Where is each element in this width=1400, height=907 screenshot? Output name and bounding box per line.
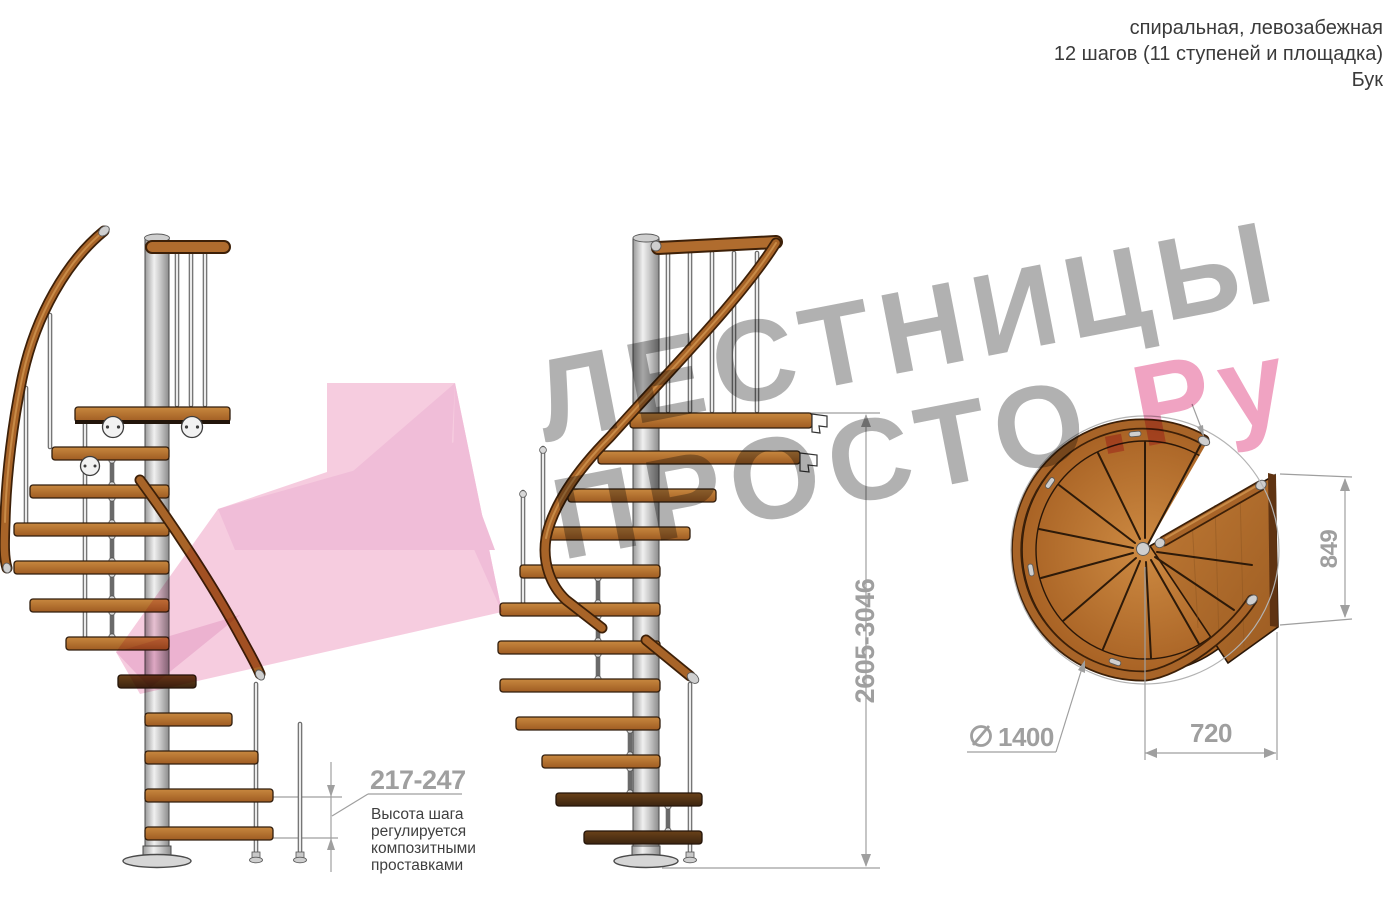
arrow-down-icon — [861, 854, 871, 867]
base-flange — [123, 855, 191, 868]
arrow-up-icon — [327, 838, 335, 850]
watermark-arrow — [116, 383, 502, 694]
platform-side-dimension: 849 — [1316, 530, 1343, 569]
dimension-diameter: 1400 — [967, 660, 1085, 752]
diameter-dimension: 1400 — [998, 722, 1054, 752]
title-material: Бук — [1352, 69, 1384, 91]
dimension-platform-side: 849 — [1280, 474, 1352, 625]
connector-plate — [81, 417, 203, 476]
staircase-technical-drawing: 2605-3046 217-247 Высота шага регулирует… — [0, 0, 1400, 907]
center-post-ball — [1137, 543, 1150, 556]
title-steps: 12 шагов (11 ступеней и площадка) — [1054, 43, 1383, 65]
drawing-page: 2605-3046 217-247 Высота шага регулирует… — [0, 0, 1400, 907]
exit-width-dimension: 720 — [1190, 718, 1232, 748]
title-type: спиральная, левозабежная — [1130, 17, 1383, 39]
arrow-down-icon — [327, 785, 335, 797]
platform-board — [75, 407, 230, 422]
baluster-feet — [684, 852, 697, 863]
center-column — [145, 237, 169, 859]
total-height-dimension: 2605-3046 — [850, 578, 880, 703]
title-block: спиральная, левозабежная 12 шагов (11 ст… — [1054, 17, 1383, 91]
base-flange — [614, 855, 678, 868]
step-height-note: Высота шага регулируется композитными пр… — [371, 806, 480, 874]
step-height-dimension: 217-247 — [370, 765, 466, 795]
baluster-feet — [250, 852, 307, 863]
